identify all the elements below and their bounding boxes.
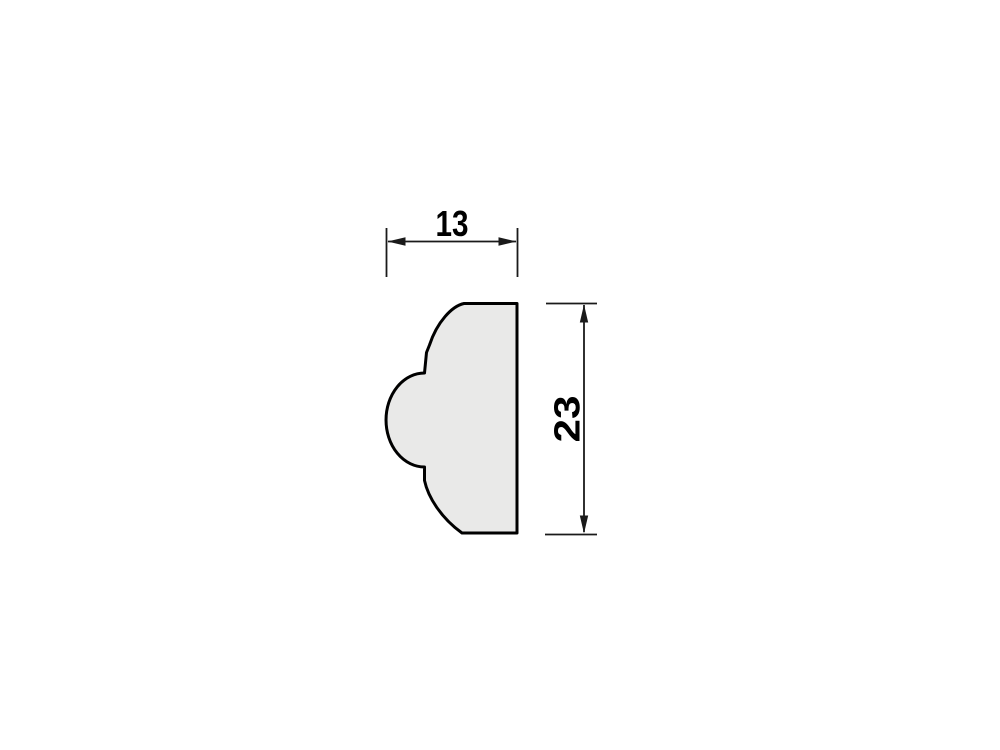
width-arrowhead-right (499, 237, 517, 245)
width-dimension: 13 (387, 203, 518, 277)
height-arrowhead-bottom (580, 516, 588, 534)
height-dimension: 23 (545, 304, 597, 535)
width-arrowhead-left (388, 237, 406, 245)
width-dimension-label: 13 (436, 203, 469, 244)
height-arrowhead-top (580, 305, 588, 323)
molding-profile-shape (386, 304, 517, 534)
molding-profile-drawing: 13 23 (0, 0, 1000, 750)
height-dimension-label: 23 (547, 396, 588, 443)
drawing-canvas: 13 23 (0, 0, 1000, 750)
